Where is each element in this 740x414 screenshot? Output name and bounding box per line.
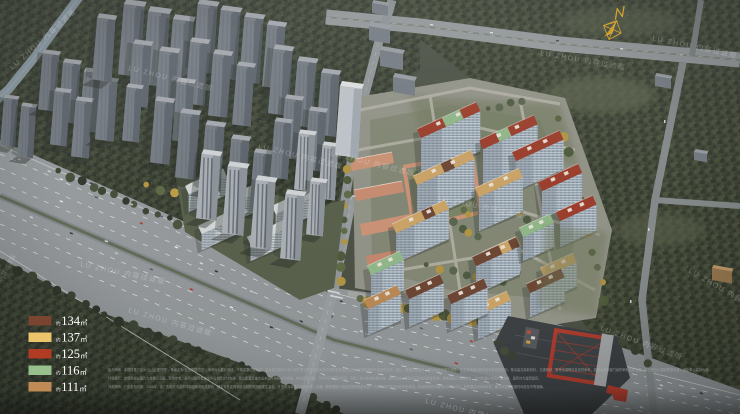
svg-text:郑重声明：广告发布时间：2023年，本广告相关内容不排除因政: 郑重声明：广告发布时间：2023年，本广告相关内容不排除因政府相关规划、规定及开… (108, 384, 546, 389)
svg-text:特别提示：本项目部分图片为效果示意图，仅供参考，最终以政府批: 特别提示：本项目部分图片为效果示意图，仅供参考，最终以政府批准文件及实际交付为准… (108, 376, 542, 381)
svg-text:免责声明：本项目推广名为“云山云图揽境”，备案名为“云图揽境: 免责声明：本项目推广名为“云山云图揽境”，备案名为“云图揽境花园”，本资料为要约… (108, 367, 711, 372)
